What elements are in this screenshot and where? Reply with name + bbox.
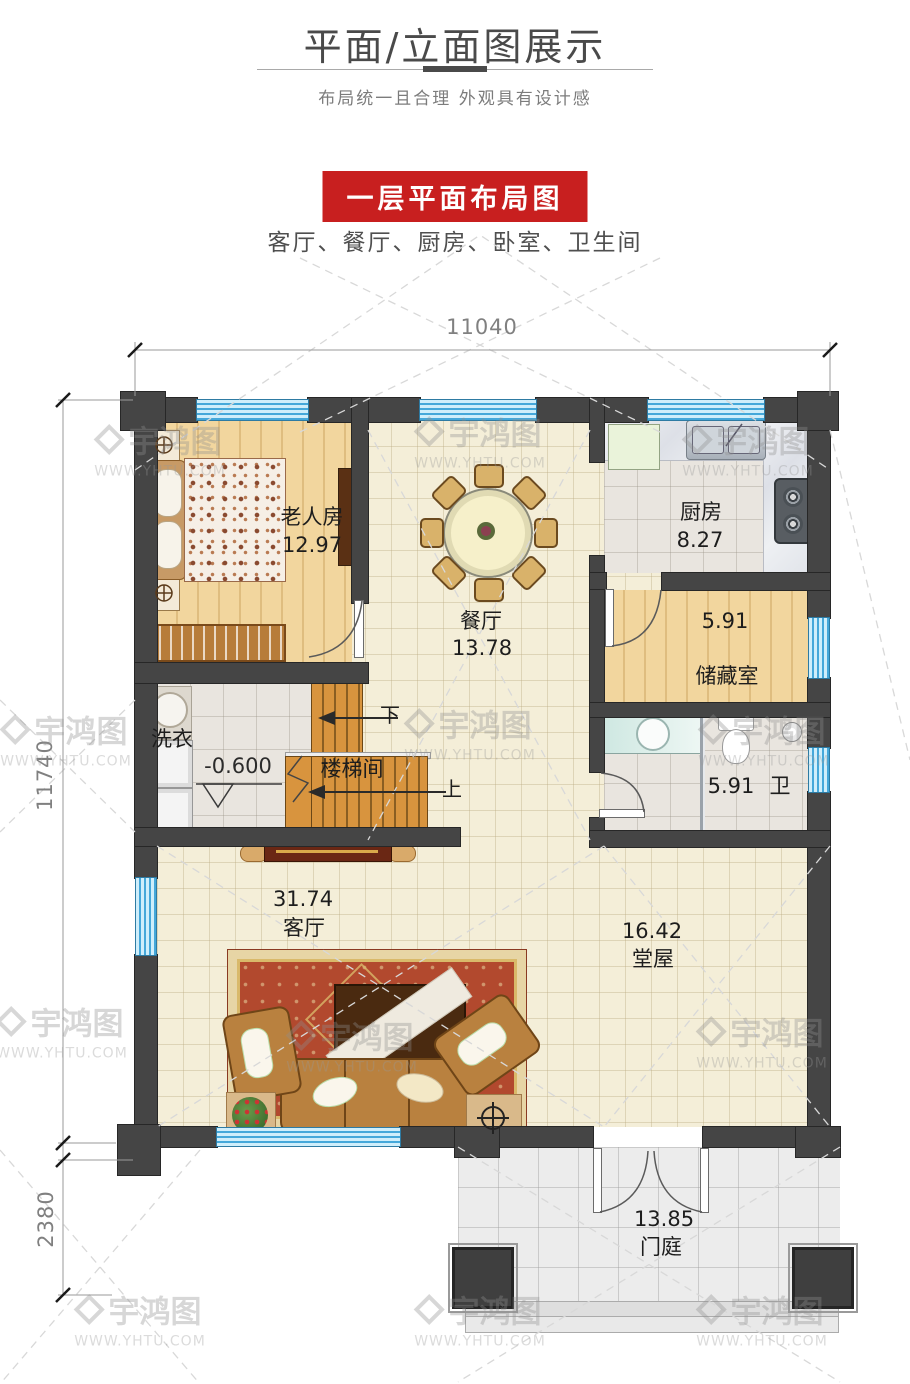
laundry-name: 洗衣	[151, 728, 193, 751]
window	[197, 400, 308, 420]
dining-chair	[474, 464, 504, 488]
porch-column	[452, 1247, 514, 1309]
kitchen-name: 厨房	[680, 501, 722, 524]
wall-segment	[590, 556, 604, 573]
porch-pilaster	[455, 1127, 499, 1157]
watermark: 宇鸿图WWW.YHTU.COM	[0, 707, 132, 770]
storage-name: 储藏室	[696, 665, 759, 688]
bed-duvet	[184, 458, 286, 582]
section-banner: 一层平面布局图	[323, 171, 588, 222]
storage-area: 5.91	[702, 610, 749, 633]
window	[809, 748, 829, 792]
window	[420, 400, 536, 420]
fridge	[608, 424, 660, 470]
header-divider-accent	[423, 66, 487, 72]
stair-landing	[286, 757, 314, 830]
front-door-leaf	[594, 1149, 601, 1212]
window	[648, 400, 764, 420]
wall-segment	[135, 828, 460, 846]
tv-console-trim	[276, 850, 378, 853]
table-centerpiece	[477, 522, 495, 540]
page-title: 平面/立面图展示	[304, 16, 607, 71]
corner-pier	[121, 392, 165, 430]
bathroom-area: 5.91	[708, 775, 755, 798]
watermark-url: WWW.YHTU.COM	[696, 1334, 828, 1350]
vanity-basin	[636, 717, 670, 751]
porch-step-1	[466, 1302, 838, 1317]
watermark-brand: 宇鸿图	[30, 999, 123, 1044]
living-name: 客厅	[283, 917, 325, 940]
stove-burner	[783, 514, 803, 534]
porch-column	[792, 1247, 854, 1309]
stair-down-label: 下	[380, 704, 400, 726]
wall-segment	[590, 573, 606, 590]
wall-segment	[590, 590, 604, 772]
wall-segment	[662, 573, 830, 590]
front-door-leaf	[701, 1149, 708, 1212]
yhtu-logo-icon	[0, 1005, 27, 1036]
stair-up-label: 上	[442, 778, 462, 800]
porch-pilaster	[796, 1127, 840, 1157]
tv-side-speaker	[388, 845, 416, 862]
watermark-brand: 宇鸿图	[108, 1287, 201, 1332]
wall-segment	[352, 398, 368, 603]
porch-name: 门庭	[640, 1236, 682, 1259]
dimension-porch-depth: 2380	[34, 1190, 58, 1247]
bedroom-area: 12.97	[282, 534, 342, 557]
door-leaf	[355, 601, 363, 657]
yhtu-logo-icon	[414, 1293, 445, 1324]
page-subtitle: 布局统一且合理 外观具有设计感	[318, 84, 591, 109]
bed-cushion	[154, 521, 182, 569]
stair-flight-down	[312, 683, 362, 755]
sink-basin	[728, 426, 760, 454]
dimension-left-height: 11740	[33, 739, 57, 811]
yhtu-logo-icon	[74, 1293, 105, 1324]
shower-head	[782, 722, 802, 742]
shower-partition	[700, 712, 703, 831]
watermark: 宇鸿图WWW.YHTU.COM	[74, 1287, 206, 1350]
watermark-url: WWW.YHTU.COM	[0, 754, 132, 770]
watermark: 宇鸿图WWW.YHTU.COM	[0, 999, 128, 1062]
wall-segment	[135, 398, 157, 878]
window	[217, 1128, 400, 1146]
stairwell-name: 楼梯间	[321, 758, 384, 781]
window	[136, 878, 156, 955]
wall-segment	[590, 703, 830, 717]
wardrobe	[148, 624, 286, 662]
dining-chair	[534, 518, 558, 548]
laundry-sink	[152, 692, 188, 728]
stove-burner	[783, 487, 803, 507]
floor-level-value: -0.600	[204, 755, 272, 778]
door-leaf	[606, 590, 613, 646]
door-leaf	[600, 810, 644, 817]
wall-segment	[590, 398, 604, 462]
hall-name: 堂屋	[632, 948, 674, 971]
watermark-url: WWW.YHTU.COM	[414, 1334, 546, 1350]
dining-chair	[420, 518, 444, 548]
porch-area: 13.85	[634, 1208, 694, 1231]
watermark-url: WWW.YHTU.COM	[0, 1046, 128, 1062]
porch-step-2	[466, 1317, 838, 1332]
sofa	[280, 1058, 476, 1134]
dining-chair	[474, 578, 504, 602]
corner-pier	[798, 392, 838, 430]
bathroom-name: 卫	[770, 775, 791, 798]
wall-segment	[135, 955, 157, 1147]
rooms-list-line: 客厅、餐厅、厨房、卧室、卫生间	[268, 223, 643, 257]
toilet-bowl	[722, 729, 750, 764]
dining-area: 13.78	[452, 637, 512, 660]
page: 平面/立面图展示 布局统一且合理 外观具有设计感 一层平面布局图 客厅、餐厅、厨…	[0, 0, 910, 1384]
dimension-top-width: 11040	[446, 315, 518, 339]
corner-pier	[118, 1125, 160, 1175]
kitchen-area: 8.27	[677, 529, 724, 552]
dining-name: 餐厅	[460, 610, 502, 633]
watermark-url: WWW.YHTU.COM	[74, 1334, 206, 1350]
hall-area: 16.42	[622, 920, 682, 943]
window	[809, 618, 829, 678]
sink-basin	[692, 426, 724, 454]
wall-segment	[135, 663, 368, 683]
living-area: 31.74	[273, 888, 333, 911]
yhtu-logo-icon	[0, 713, 31, 744]
bedroom-name: 老人房	[281, 506, 344, 529]
wall-segment	[590, 831, 830, 847]
bed-cushion	[154, 469, 182, 517]
